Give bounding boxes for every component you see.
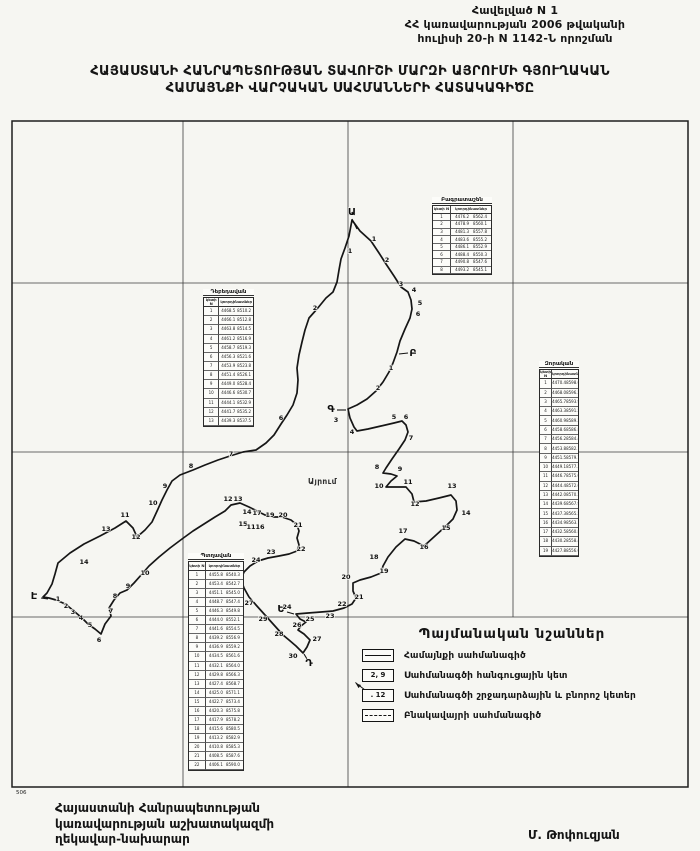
coordinates-cell: 4463.38591.5 (552, 407, 578, 416)
point-number-cell: 6 (433, 251, 451, 259)
footer-line-1: Հայաստանի Հանրապետության (55, 801, 274, 817)
legend-title: Պայմանական նշաններ (362, 626, 662, 642)
legend-symbol-dashed-icon (362, 709, 394, 722)
coordinates-cell: 4439.28556.9 (206, 634, 243, 643)
boundary-point-number: 19 (265, 511, 275, 519)
legend-symbol-point-icon: . 12 (362, 689, 394, 702)
point-number-cell: 5 (433, 244, 451, 252)
point-number-cell: 4 (189, 598, 206, 607)
table-row: 184415.68580.5 (189, 725, 243, 734)
table-row: 134439.38537.5 (204, 417, 253, 426)
boundary-point-number: 7 (409, 434, 414, 442)
boundary-point-number: 2 (376, 384, 381, 392)
table-row: 54458.78519.3 (204, 344, 253, 353)
boundary-point-number: 13 (447, 482, 456, 490)
point-number-cell: 2 (189, 580, 206, 589)
table-row: 184430.28558.4 (540, 537, 578, 546)
coordinate-table: Պտղավանկետի Nկոորդինատներ14455.88540.324… (188, 553, 244, 771)
coordinates-cell: 4466.18512.8 (219, 316, 253, 325)
legend-symbol-text: . 12 (371, 692, 386, 699)
table-row: 54486.18552.9 (433, 244, 491, 252)
coordinates-cell: 4444.48572.6 (552, 482, 578, 491)
table-row: 114446.78575.0 (540, 472, 578, 481)
point-number-cell: 3 (189, 589, 206, 598)
legend-item: 2, 9Սահմանագծի հանգուցային կետ (362, 669, 662, 682)
table-row: 104446.68530.7 (204, 389, 253, 398)
table-row: 164434.98563.1 (540, 519, 578, 528)
point-number-cell: 13 (189, 680, 206, 689)
coordinates-cell: 4481.38557.8 (451, 229, 491, 237)
boundary-point-number: 28 (274, 630, 284, 638)
table-row: 24468.08596.2 (540, 389, 578, 398)
legend-item: . 12Սահմանագծի շրջադարձային և բնորոշ կետ… (362, 689, 662, 702)
boundary-point-number: 9 (163, 482, 168, 490)
boundary-point-number: 3 (334, 416, 339, 424)
table-row: 64458.68586.8 (540, 426, 578, 435)
table-row: 84453.88582.1 (540, 444, 578, 453)
coordinates-cell: 4463.88514.5 (219, 325, 253, 334)
table-title: Բագրատաշեն (432, 197, 492, 204)
point-number-cell: 5 (189, 607, 206, 616)
boundary-point-number: 23 (325, 612, 334, 620)
point-number-cell: 5 (540, 416, 552, 425)
boundary-point-number: 9 (398, 465, 403, 473)
boundary-point-number: 17 (398, 527, 407, 535)
boundary-point-number: 24 (282, 603, 292, 611)
boundary-point-number: 1 (348, 247, 353, 255)
node-leader-arrow (352, 219, 357, 229)
table-row: 164420.38575.8 (189, 707, 243, 716)
table-col-header: կետի N (204, 298, 219, 307)
table-row: 54460.98589.2 (540, 416, 578, 425)
boundary-point-number: 30 (288, 652, 298, 660)
table-row: 144439.68567.9 (540, 500, 578, 509)
point-number-cell: 9 (189, 643, 206, 652)
table-row: 94436.98559.2 (189, 643, 243, 652)
boundary-point-number: 5 (88, 621, 93, 629)
point-number-cell: 12 (204, 408, 219, 417)
boundary-point-number: 11 (403, 478, 413, 486)
point-number-cell: 9 (540, 454, 552, 463)
boundary-point-number: 12 (131, 533, 140, 541)
boundary-point-number: 8 (189, 462, 194, 470)
coordinates-cell: 4456.28584.4 (552, 435, 578, 444)
point-number-cell: 9 (204, 380, 219, 389)
point-number-cell: 14 (540, 500, 552, 509)
boundary-point-number: 4 (79, 614, 84, 622)
node-letter-label: Բ (409, 348, 416, 359)
table-body: կետի Nկոորդինատներ14470.48598.624468.085… (539, 369, 579, 557)
node-leader-arrow (287, 612, 294, 614)
point-number-cell: 16 (189, 707, 206, 716)
table-row: 14470.48598.6 (540, 379, 578, 388)
table-row: 134427.48568.7 (189, 680, 243, 689)
boundary-point-number: 3 (399, 280, 404, 288)
table-row: 174417.98578.2 (189, 716, 243, 725)
boundary-point-number: 24 (251, 556, 261, 564)
coordinates-cell: 4429.88566.3 (206, 671, 243, 680)
table-row: 204410.88585.3 (189, 743, 243, 752)
coordinates-cell: 4430.28558.4 (552, 537, 578, 546)
boundary-point-number: 7 (229, 450, 234, 458)
table-row: 104434.58561.6 (189, 652, 243, 661)
point-number-cell: 13 (204, 417, 219, 426)
table-row: 64488.48550.3 (433, 251, 491, 259)
table-row: 14468.58510.2 (204, 307, 253, 316)
boundary-point-number: 2 (385, 256, 390, 264)
boundary-point-number: 2 (313, 304, 318, 312)
coordinate-table: Բագրատաշենկետի Nկոորդինատներ14476.28562.… (432, 197, 492, 275)
coordinates-cell: 4406.18590.0 (206, 761, 243, 770)
point-number-cell: 8 (540, 444, 552, 453)
table-title: Դեբեդավան (203, 289, 254, 296)
point-number-cell: 11 (204, 399, 219, 408)
coordinates-cell: 4444.08552.1 (206, 616, 243, 625)
legend-item-label: Սահմանագծի շրջադարձային և բնորոշ կետեր (404, 691, 636, 701)
boundary-point-number: 20 (278, 511, 288, 519)
coordinates-cell: 4453.48542.7 (206, 580, 243, 589)
legend-item-label: Սահմանագծի հանգուցային կետ (404, 671, 568, 681)
coordinates-cell: 4436.98559.2 (206, 643, 243, 652)
coordinates-cell: 4425.08571.1 (206, 689, 243, 698)
coordinates-cell: 4434.98563.1 (552, 519, 578, 528)
coordinates-cell: 4420.38575.8 (206, 707, 243, 716)
table-row: 74490.88547.6 (433, 259, 491, 267)
coordinates-cell: 4483.68555.2 (451, 236, 491, 244)
table-row: 224406.18590.0 (189, 761, 243, 770)
table-row: 44461.28516.9 (204, 335, 253, 344)
point-number-cell: 7 (189, 625, 206, 634)
point-number-cell: 10 (189, 652, 206, 661)
legend-item: Համայնքի սահմանագիծ (362, 649, 662, 662)
coordinates-cell: 4417.98578.2 (206, 716, 243, 725)
table-row: 84493.28545.1 (433, 267, 491, 275)
map-legend: Պայմանական նշաններ Համայնքի սահմանագիծ2,… (362, 626, 662, 722)
point-number-cell: 21 (189, 752, 206, 761)
point-number-cell: 1 (189, 571, 206, 580)
table-row: 24453.48542.7 (189, 580, 243, 589)
point-number-cell: 11 (540, 472, 552, 481)
table-row: 74441.68554.5 (189, 625, 243, 634)
boundary-point-number: 27 (244, 599, 253, 607)
coordinates-cell: 4468.08596.2 (552, 389, 578, 398)
point-number-cell: 1 (540, 379, 552, 388)
boundary-point-number: 5 (392, 413, 397, 421)
table-row: 194427.88556.0 (540, 547, 578, 556)
table-row: 14455.88540.3 (189, 571, 243, 580)
point-number-cell: 3 (540, 398, 552, 407)
boundary-point-number: 14 (242, 508, 252, 516)
boundary-point-number: 16 (255, 523, 265, 531)
coordinates-cell: 4427.88556.0 (552, 547, 578, 556)
boundary-point-number: 6 (97, 636, 102, 644)
boundary-point-number: 10 (148, 499, 158, 507)
coordinates-cell: 4432.18564.0 (206, 662, 243, 671)
table-row: 34465.78593.9 (540, 398, 578, 407)
boundary-point-number: 9 (126, 582, 131, 590)
settlement-label: Այրում (308, 477, 338, 486)
coordinates-cell: 4422.78573.4 (206, 698, 243, 707)
point-number-cell: 7 (540, 435, 552, 444)
point-number-cell: 4 (433, 236, 451, 244)
boundary-point-number: 4 (412, 286, 417, 294)
table-row: 14476.28562.4 (433, 214, 491, 222)
coordinates-cell: 4441.78535.2 (219, 408, 253, 417)
boundary-point-number: 8 (375, 463, 380, 471)
boundary-point-number: 17 (252, 509, 261, 517)
coordinates-cell: 4478.98560.1 (451, 221, 491, 229)
table-row: 54446.38549.8 (189, 607, 243, 616)
point-number-cell: 3 (433, 229, 451, 237)
point-number-cell: 17 (540, 528, 552, 537)
table-title: Զորական (539, 361, 579, 368)
coordinates-cell: 4460.98589.2 (552, 416, 578, 425)
point-number-cell: 12 (189, 671, 206, 680)
table-body: կետի Nկոորդինատներ14468.58510.224466.185… (203, 297, 254, 427)
boundary-point-number: 1 (389, 364, 394, 372)
coordinates-cell: 4453.98523.8 (219, 362, 253, 371)
coordinate-table: Դեբեդավանկետի Nկոորդինատներ14468.58510.2… (203, 289, 254, 427)
boundary-point-number: 15 (441, 524, 451, 532)
legend-symbol-text: 2, 9 (371, 672, 386, 679)
table-row: 154422.78573.4 (189, 698, 243, 707)
coordinates-cell: 4439.38537.5 (219, 417, 253, 426)
table-title: Պտղավան (188, 553, 244, 560)
table-row: 134442.08570.2 (540, 491, 578, 500)
coordinates-cell: 4408.58587.6 (206, 752, 243, 761)
point-number-cell: 6 (189, 616, 206, 625)
coordinates-cell: 4458.78519.3 (219, 344, 253, 353)
boundary-point-number: 29 (258, 615, 268, 623)
coordinates-cell: 4461.28516.9 (219, 335, 253, 344)
point-number-cell: 7 (204, 362, 219, 371)
frame-corner-note: 506 (16, 790, 27, 796)
table-body: կետի Nկոորդինատներ14455.88540.324453.485… (188, 561, 244, 771)
table-row: 34463.88514.5 (204, 325, 253, 334)
coordinates-cell: 4458.68586.8 (552, 426, 578, 435)
point-number-cell: 19 (540, 547, 552, 556)
node-letter-label: Դ (305, 658, 313, 669)
coordinates-cell: 4453.88582.1 (552, 444, 578, 453)
coordinates-cell: 4444.18532.9 (219, 399, 253, 408)
coordinates-cell: 4437.38565.5 (552, 509, 578, 518)
coordinates-cell: 4442.08570.2 (552, 491, 578, 500)
coordinates-cell: 4446.68530.7 (219, 389, 253, 398)
coordinates-cell: 4470.48598.6 (552, 379, 578, 388)
boundary-point-number: 6 (416, 310, 421, 318)
boundary-point-number: 7 (109, 607, 114, 615)
footer-office-block: Հայաստանի Հանրապետության կառավարության ա… (55, 801, 274, 848)
legend-item-label: Համայնքի սահմանագիծ (404, 651, 526, 661)
boundary-point-number: 18 (369, 553, 379, 561)
table-row: 64444.08552.1 (189, 616, 243, 625)
table-row: 104449.18577.3 (540, 463, 578, 472)
table-row: 34451.18545.0 (189, 589, 243, 598)
coordinates-cell: 4449.18577.3 (552, 463, 578, 472)
table-row: 144425.08571.1 (189, 689, 243, 698)
table-row: 84451.48526.1 (204, 371, 253, 380)
point-number-cell: 8 (189, 634, 206, 643)
point-number-cell: 2 (433, 221, 451, 229)
boundary-point-number: 14 (79, 558, 89, 566)
coordinates-cell: 4448.78547.4 (206, 598, 243, 607)
point-number-cell: 16 (540, 519, 552, 528)
footer-signature: Մ. Թոփուզյան (528, 828, 620, 842)
table-row: 124441.78535.2 (204, 408, 253, 417)
boundary-point-number: 6 (404, 413, 409, 421)
point-number-cell: 15 (189, 698, 206, 707)
table-row: 94451.58579.7 (540, 454, 578, 463)
point-number-cell: 15 (540, 509, 552, 518)
point-number-cell: 8 (204, 371, 219, 380)
boundary-point-number: 23 (266, 548, 275, 556)
coordinates-cell: 4410.88585.3 (206, 743, 243, 752)
coordinates-cell: 4432.58560.8 (552, 528, 578, 537)
boundary-point-number: 1 (372, 235, 377, 243)
node-letter-label: Է (31, 591, 38, 602)
boundary-point-number: 2 (64, 602, 69, 610)
table-row: 114432.18564.0 (189, 662, 243, 671)
community-boundary-line (43, 220, 457, 653)
coordinates-cell: 4451.58579.7 (552, 454, 578, 463)
point-number-cell: 4 (204, 335, 219, 344)
boundary-point-number: 25 (305, 615, 315, 623)
table-row: 124444.48572.6 (540, 482, 578, 491)
boundary-point-number: 27 (312, 635, 321, 643)
boundary-point-number: 20 (341, 573, 351, 581)
coordinates-cell: 4449.08528.4 (219, 380, 253, 389)
coordinates-cell: 4446.38549.8 (206, 607, 243, 616)
table-row: 214408.58587.6 (189, 752, 243, 761)
table-row: 174432.58560.8 (540, 528, 578, 537)
coordinates-cell: 4486.18552.9 (451, 244, 491, 252)
table-row: 154437.38565.5 (540, 509, 578, 518)
point-number-cell: 18 (189, 725, 206, 734)
table-row: 74453.98523.8 (204, 362, 253, 371)
boundary-point-number: 22 (296, 545, 305, 553)
point-number-cell: 6 (540, 426, 552, 435)
legend-item-label: Բնակավայրի սահմանագիծ (404, 711, 541, 721)
coordinates-cell: 4493.28545.1 (451, 267, 491, 275)
footer-line-3: ղեկավար-նախարար (55, 832, 274, 848)
boundary-point-number: 4 (350, 428, 355, 436)
coordinates-cell: 4441.68554.5 (206, 625, 243, 634)
point-number-cell: 1 (204, 307, 219, 316)
coordinate-table: Զորականկետի Nկոորդինատներ14470.48598.624… (539, 361, 579, 557)
coordinates-cell: 4455.88540.3 (206, 571, 243, 580)
table-col-header: կետի N (189, 562, 206, 571)
footer-line-2: կառավարության աշխատակազմի (55, 817, 274, 833)
table-col-header: կոորդինատներ (206, 562, 243, 571)
boundary-point-number: 26 (292, 621, 302, 629)
legend-items: Համայնքի սահմանագիծ2, 9Սահմանագծի հանգու… (362, 649, 662, 722)
point-number-cell: 22 (189, 761, 206, 770)
node-letter-label: Ա (348, 207, 356, 218)
coordinates-cell: 4451.48526.1 (219, 371, 253, 380)
table-row: 24478.98560.1 (433, 221, 491, 229)
coordinates-cell: 4415.68580.5 (206, 725, 243, 734)
point-number-cell: 4 (540, 407, 552, 416)
table-row: 194413.28582.9 (189, 734, 243, 743)
point-number-cell: 20 (189, 743, 206, 752)
coordinates-cell: 4465.78593.9 (552, 398, 578, 407)
table-row: 34481.38557.8 (433, 229, 491, 237)
coordinates-cell: 4456.38521.6 (219, 353, 253, 362)
table-row: 74456.28584.4 (540, 435, 578, 444)
point-number-cell: 19 (189, 734, 206, 743)
point-number-cell: 12 (540, 482, 552, 491)
boundary-map: ԱԲԳԴԵԷ1234561212345678910111213141516171… (0, 0, 700, 851)
coordinates-cell: 4413.28582.9 (206, 734, 243, 743)
table-row: 124429.88566.3 (189, 671, 243, 680)
boundary-point-number: 11 (120, 511, 130, 519)
table-col-header: կոորդինատներ (451, 206, 491, 214)
point-number-cell: 5 (204, 344, 219, 353)
boundary-point-number: 16 (419, 543, 429, 551)
table-row: 84439.28556.9 (189, 634, 243, 643)
table-col-header: կետի N (540, 370, 552, 379)
legend-symbol-solid-icon (362, 649, 394, 662)
table-row: 64456.38521.6 (204, 353, 253, 362)
table-col-header: կոորդինատներ (219, 298, 253, 307)
point-number-cell: 7 (433, 259, 451, 267)
boundary-point-number: 14 (461, 509, 471, 517)
point-number-cell: 11 (189, 662, 206, 671)
boundary-point-number: 13 (101, 525, 110, 533)
point-number-cell: 3 (204, 325, 219, 334)
boundary-point-number: 3 (71, 608, 76, 616)
node-letter-label: Գ (327, 404, 335, 415)
point-number-cell: 2 (204, 316, 219, 325)
table-row: 114444.18532.9 (204, 399, 253, 408)
boundary-point-number: 12 (410, 500, 419, 508)
point-number-cell: 1 (433, 214, 451, 222)
coordinates-cell: 4439.68567.9 (552, 500, 578, 509)
coordinates-cell: 4427.48568.7 (206, 680, 243, 689)
coordinates-cell: 4476.28562.4 (451, 214, 491, 222)
table-row: 44483.68555.2 (433, 236, 491, 244)
coordinates-cell: 4446.78575.0 (552, 472, 578, 481)
point-number-cell: 2 (540, 389, 552, 398)
table-row: 44448.78547.4 (189, 598, 243, 607)
boundary-point-number: 13 (233, 495, 242, 503)
point-number-cell: 18 (540, 537, 552, 546)
table-row: 94449.08528.4 (204, 380, 253, 389)
table-col-header: կետի N (433, 206, 451, 214)
table-row: 44463.38591.5 (540, 407, 578, 416)
coordinates-cell: 4488.48550.3 (451, 251, 491, 259)
coordinates-cell: 4468.58510.2 (219, 307, 253, 316)
point-number-cell: 13 (540, 491, 552, 500)
point-number-cell: 17 (189, 716, 206, 725)
boundary-point-number: 1 (56, 595, 61, 603)
legend-item: Բնակավայրի սահմանագիծ (362, 709, 662, 722)
boundary-point-number: 6 (279, 414, 284, 422)
point-number-cell: 10 (540, 463, 552, 472)
point-number-cell: 8 (433, 267, 451, 275)
point-number-cell: 14 (189, 689, 206, 698)
boundary-point-number: 21 (354, 593, 364, 601)
coordinates-cell: 4490.88547.6 (451, 259, 491, 267)
boundary-point-number: 10 (374, 482, 384, 490)
boundary-point-number: 21 (293, 521, 303, 529)
table-body: կետի Nկոորդինատներ14476.28562.424478.985… (432, 205, 492, 275)
node-leader-arrow (399, 353, 408, 354)
boundary-point-number: 19 (379, 567, 389, 575)
boundary-point-number: 10 (140, 569, 150, 577)
table-col-header: կոորդինատներ (552, 370, 578, 379)
coordinates-cell: 4451.18545.0 (206, 589, 243, 598)
